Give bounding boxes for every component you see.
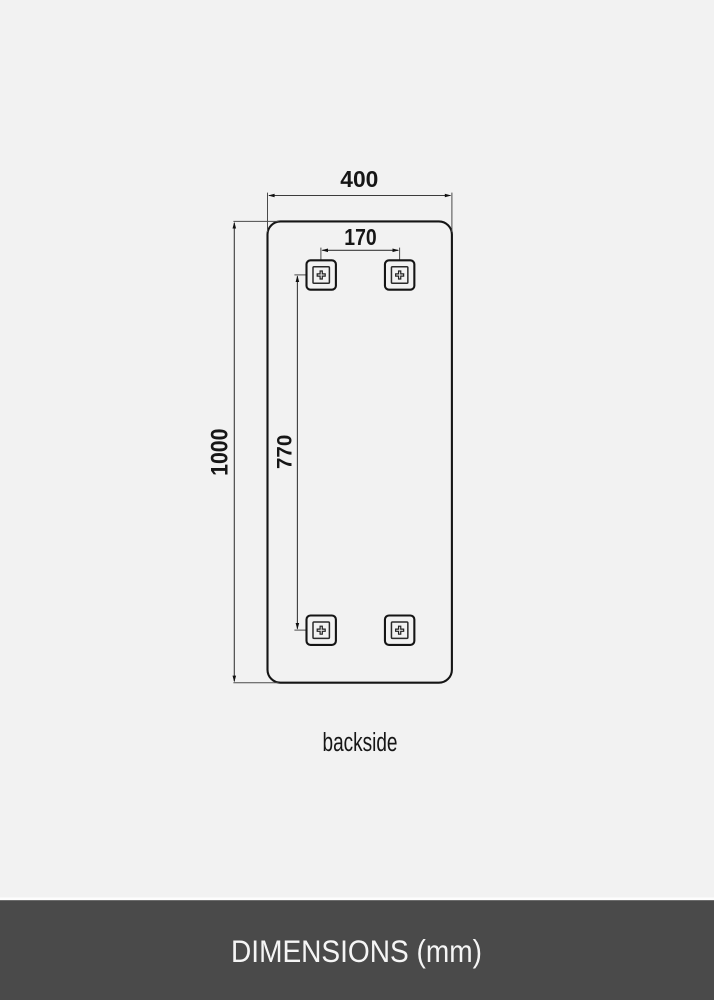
svg-text:DIMENSIONS (mm): DIMENSIONS (mm) [231,933,482,969]
svg-text:170: 170 [344,224,376,250]
svg-text:1000: 1000 [207,429,234,476]
svg-text:770: 770 [272,435,296,469]
svg-text:400: 400 [340,166,378,192]
svg-text:backside: backside [323,729,398,757]
